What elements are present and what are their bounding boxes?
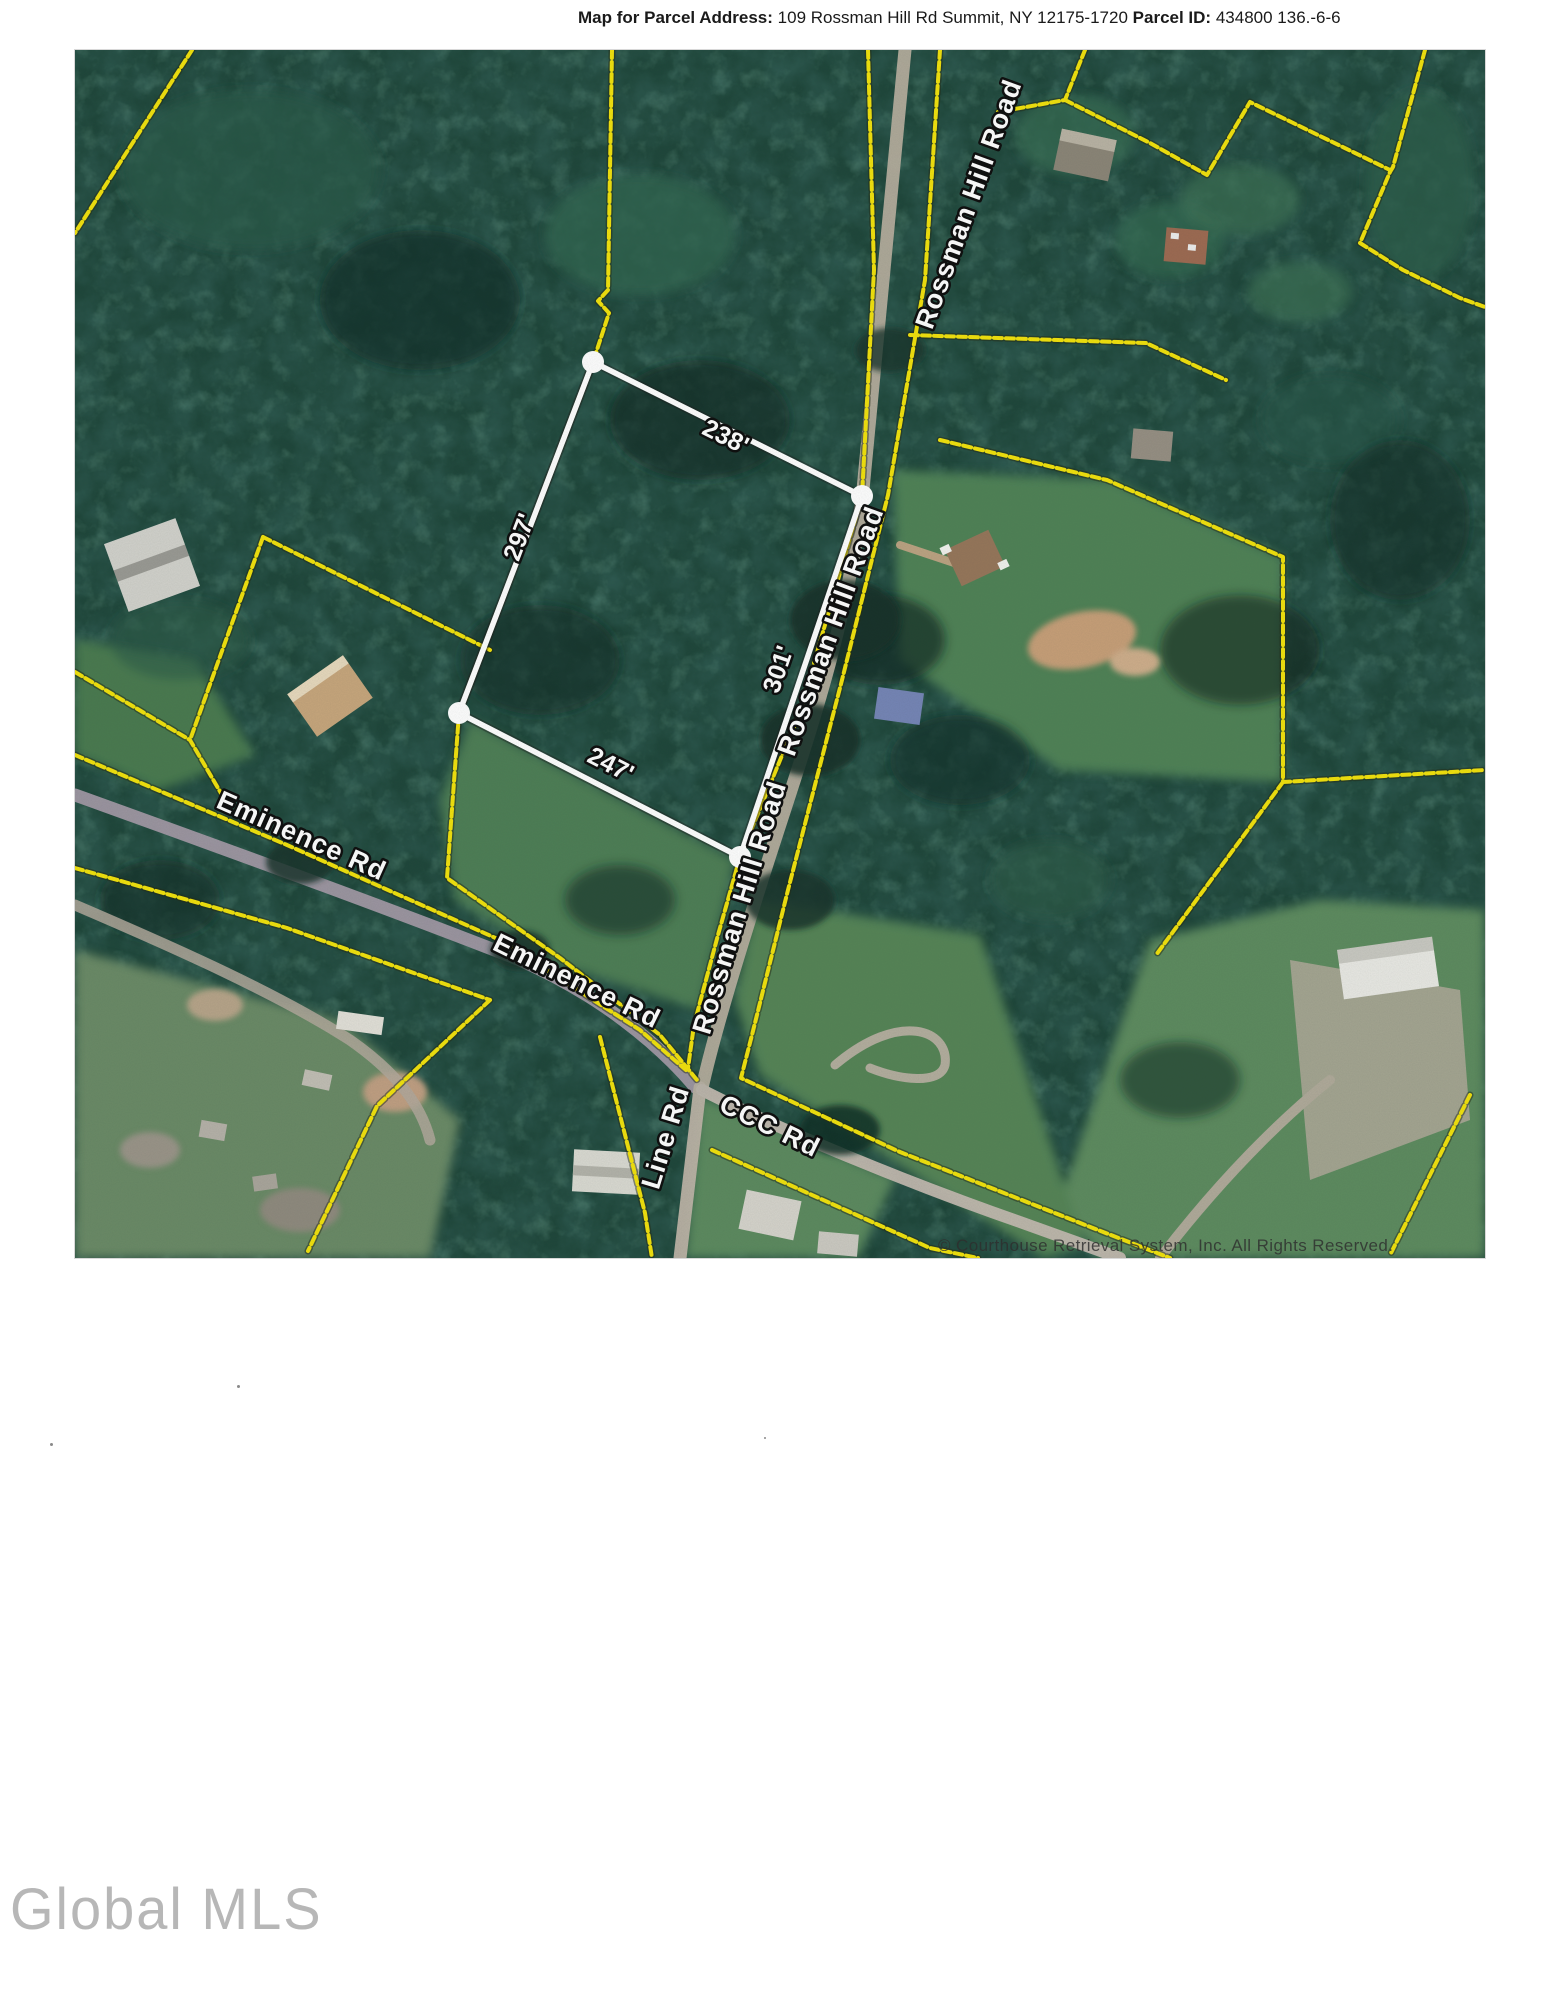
header-parcel-id-value: 434800 136.-6-6	[1216, 8, 1341, 27]
map-canvas: 238' 297' 301' 247' Rossman Hill Road Ro…	[75, 50, 1485, 1258]
header-address-value: 109 Rossman Hill Rd Summit, NY 12175-172…	[778, 8, 1128, 27]
header-parcel-id-label: Parcel ID:	[1133, 8, 1211, 27]
scan-speck	[237, 1385, 240, 1388]
scan-speck	[764, 1437, 766, 1439]
aerial-parcel-map: 238' 297' 301' 247' Rossman Hill Road Ro…	[75, 50, 1485, 1258]
page: Map for Parcel Address: 109 Rossman Hill…	[0, 0, 1545, 2000]
global-mls-logo: Global MLS	[10, 1875, 323, 1943]
scan-grain	[75, 50, 1485, 1258]
scan-speck	[50, 1443, 53, 1446]
header-address-label: Map for Parcel Address:	[578, 8, 773, 27]
parcel-header: Map for Parcel Address: 109 Rossman Hill…	[578, 8, 1341, 28]
